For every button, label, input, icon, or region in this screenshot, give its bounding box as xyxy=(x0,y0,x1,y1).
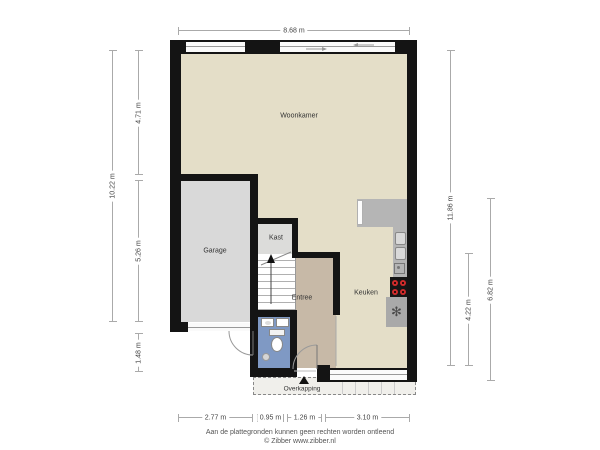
room-label-keuken: Keuken xyxy=(354,290,378,297)
room-label-entree: Entree xyxy=(292,295,313,302)
dim-label: 5.26 m xyxy=(136,237,143,264)
stairs-arrow-head-icon xyxy=(267,254,275,263)
dim-bottom-segment-1: 2.77 m xyxy=(178,417,253,418)
room-label-overkapping: Overkapping xyxy=(284,386,321,393)
entrance-marker-icon xyxy=(299,376,309,384)
dim-right-total: 11.86 m xyxy=(450,50,451,366)
dim-label: 3.10 m xyxy=(354,415,381,422)
dim-label: 1.48 m xyxy=(136,339,143,366)
dim-label: 8.68 m xyxy=(280,28,307,35)
footer-disclaimer: Aan de plattegronden kunnen geen rechten… xyxy=(0,429,600,436)
dim-label: 1.26 m xyxy=(291,415,318,422)
dim-label: 4.71 m xyxy=(136,99,143,126)
footer-copyright: © Zibber www.zibber.nl xyxy=(0,438,600,445)
dim-left-segment-3: 1.48 m xyxy=(138,333,139,372)
dim-bottom-segment-4: 3.10 m xyxy=(325,417,410,418)
plan-annotations xyxy=(0,0,600,450)
room-label-garage: Garage xyxy=(203,248,226,255)
dim-label: 0.95 m xyxy=(257,415,284,422)
dim-label: 2.77 m xyxy=(202,415,229,422)
dim-label: 10.22 m xyxy=(110,170,117,201)
dim-left-segment-2: 5.26 m xyxy=(138,180,139,322)
room-label-woonkamer: Woonkamer xyxy=(280,113,318,120)
dim-top-width: 8.68 m xyxy=(178,30,410,31)
slide-arrow-head-icon xyxy=(353,43,358,47)
dim-label: 6.82 m xyxy=(488,276,495,303)
dim-left-total: 10.22 m xyxy=(112,50,113,322)
room-label-kast: Kast xyxy=(269,235,283,242)
entree-door-arc-icon xyxy=(293,345,317,369)
dim-bottom-segment-2: 0.95 m xyxy=(257,417,284,418)
garage-door-arc-icon xyxy=(229,331,253,355)
dim-left-segment-1: 4.71 m xyxy=(138,50,139,175)
dim-right-segment-1: 4.22 m xyxy=(468,253,469,366)
dim-label: 4.22 m xyxy=(466,296,473,323)
dim-label: 11.86 m xyxy=(448,193,455,224)
dim-bottom-segment-3: 1.26 m xyxy=(287,417,322,418)
floor-plan-canvas: ✻ Woonkamer Garage xyxy=(0,0,600,450)
dim-right-segment-2: 6.82 m xyxy=(490,198,491,381)
slide-arrow-head-icon xyxy=(322,47,327,51)
kast-door-line xyxy=(261,252,291,265)
